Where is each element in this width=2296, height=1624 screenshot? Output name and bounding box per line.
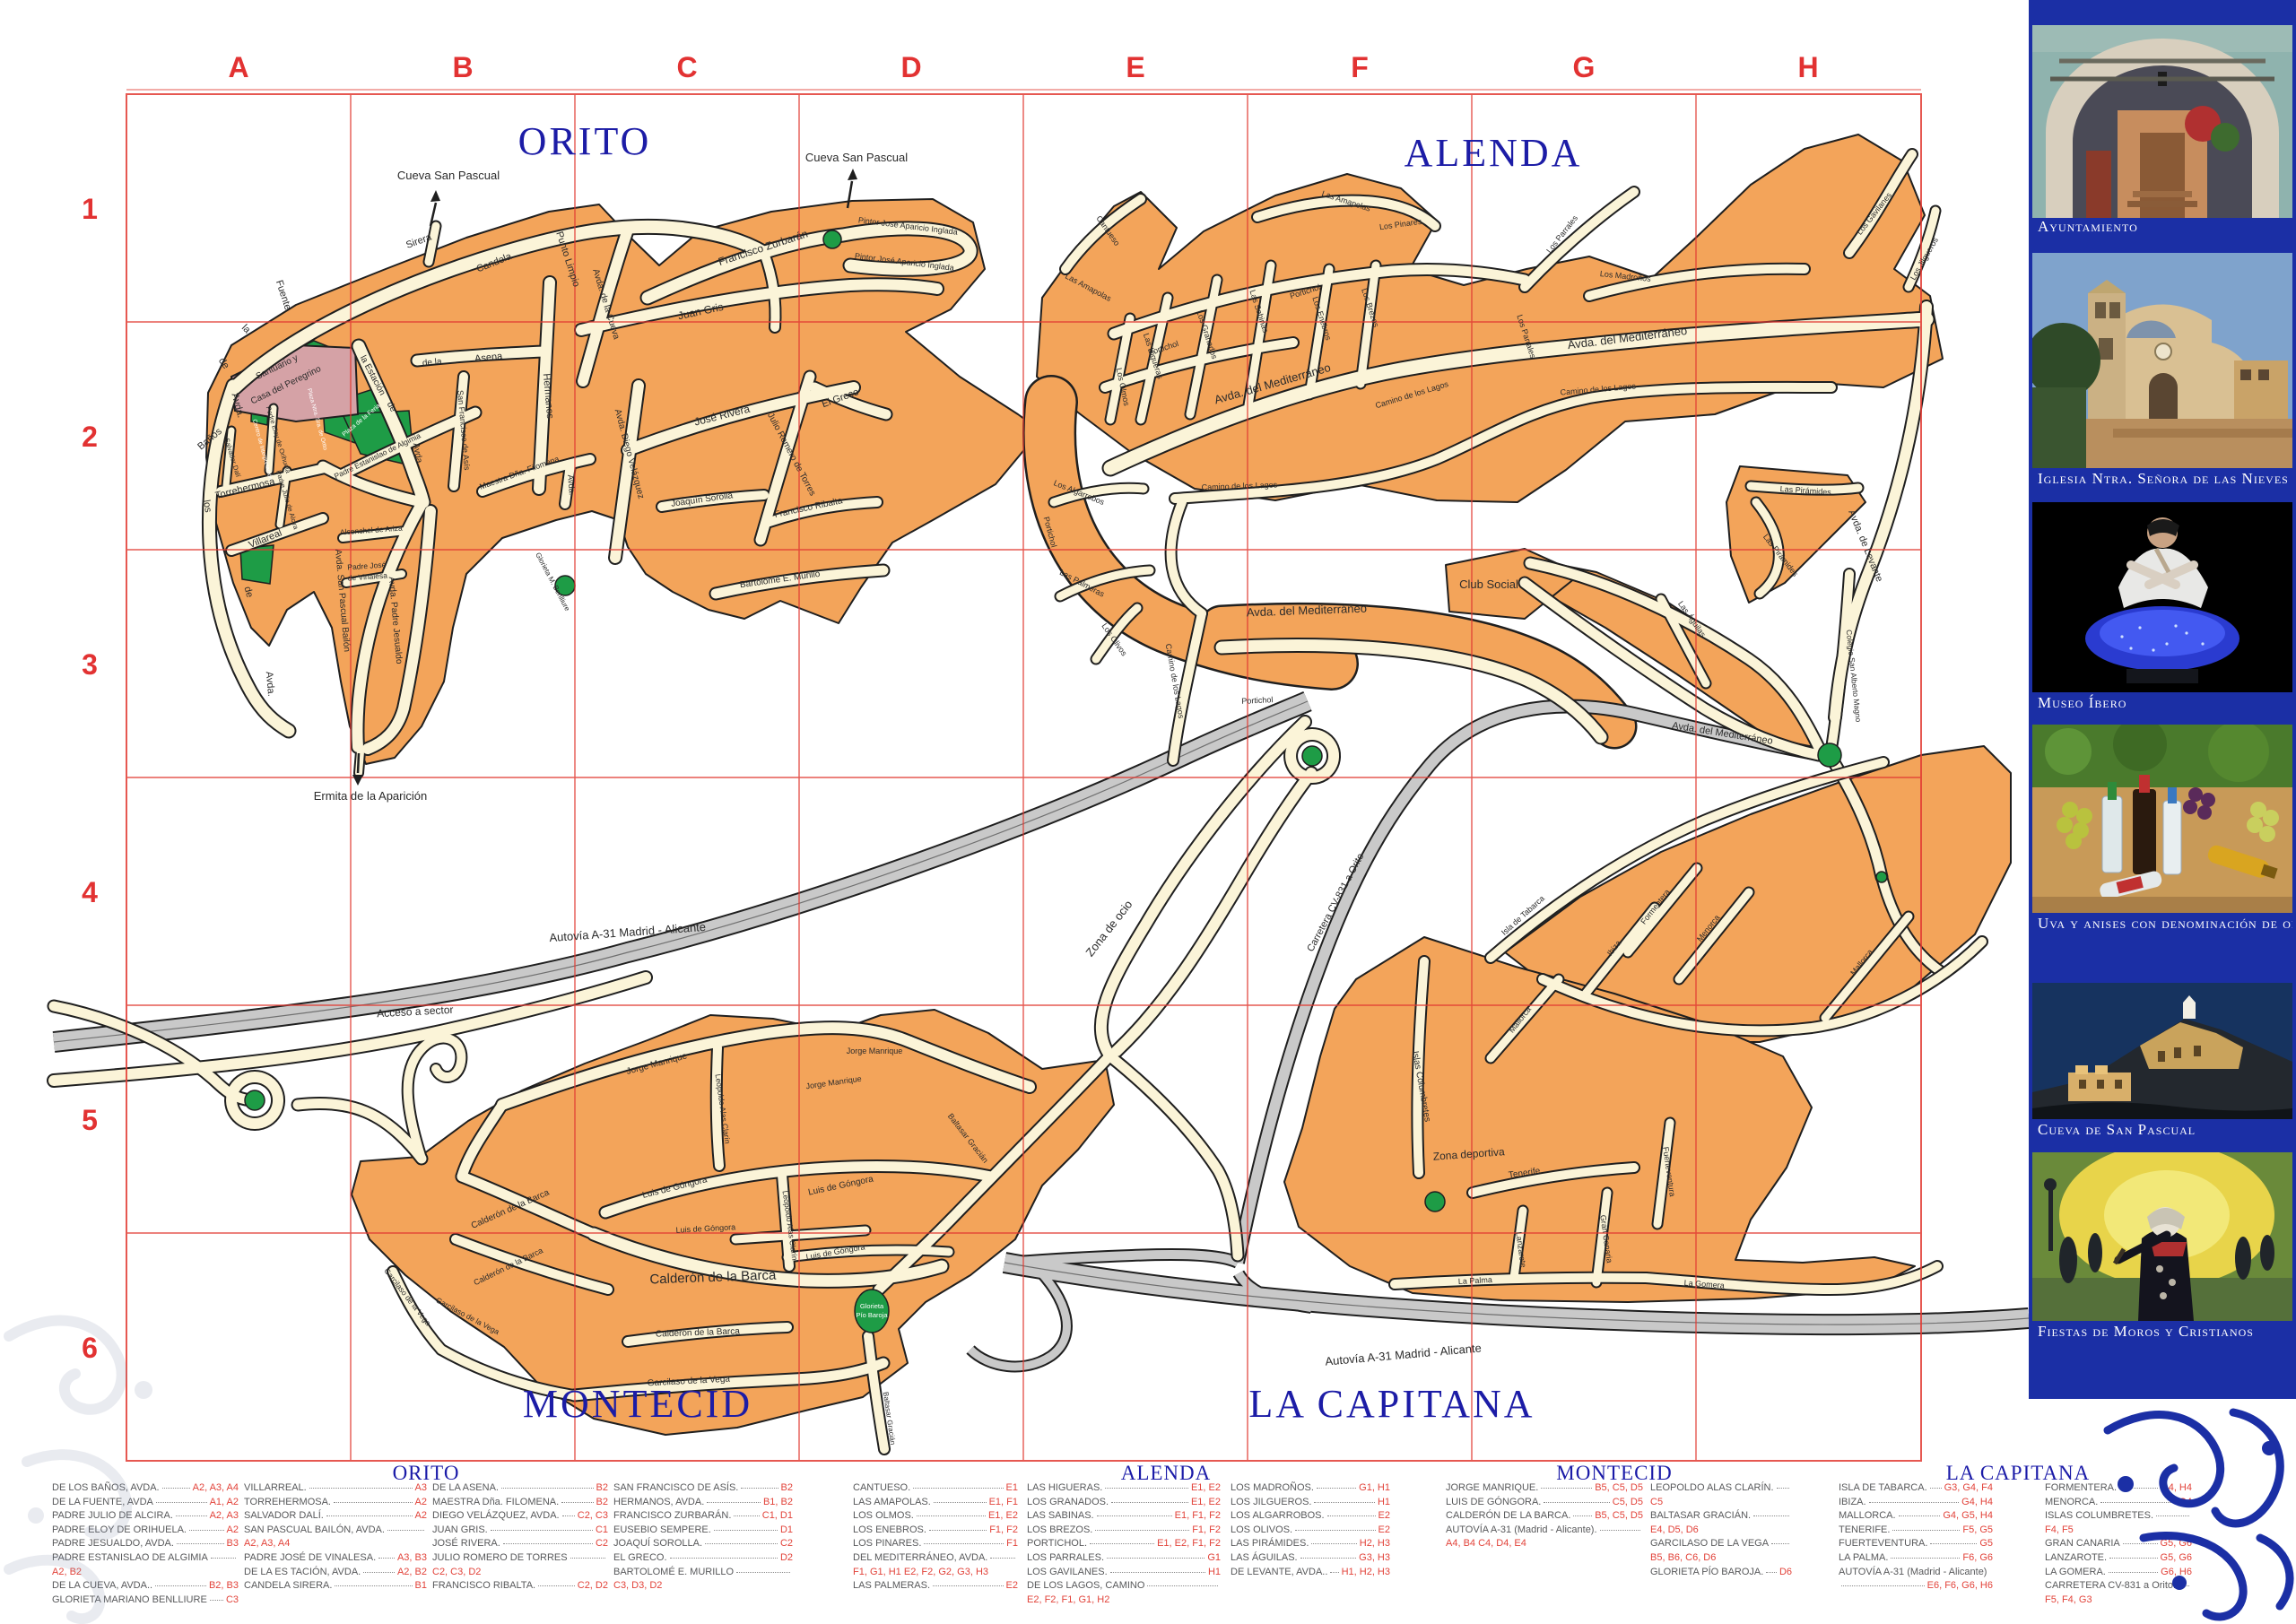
lbl-avda3: Avda.: [264, 671, 276, 697]
title-montecid: MONTECID: [523, 1382, 752, 1426]
lbl-colegio: Colegio San Alberto Magno: [1845, 630, 1864, 723]
lbl-cueva1: Cueva San Pascual: [397, 169, 500, 182]
index-col-orito-3: DE LA ASENA.B2MAESTRA Dña. FILOMENA.B2DI…: [432, 1481, 608, 1594]
caption-fiestas: Fiestas de Moros y Cristianos: [2038, 1323, 2292, 1341]
grid-col-e: E: [1126, 51, 1144, 83]
grid-col-d: D: [900, 51, 921, 83]
blue-ornament: [2090, 1394, 2296, 1624]
grid-row-1: 1: [82, 193, 98, 225]
glorieta-acceso: [245, 1090, 265, 1110]
photo-cueva: [2032, 983, 2292, 1119]
lbl-los2: los: [201, 499, 213, 514]
a31-upper-median: [54, 701, 1308, 1042]
grid-col-g: G: [1573, 51, 1596, 83]
grid-row-5: 5: [82, 1104, 98, 1136]
caption-ayuntamiento: Ayuntamiento: [2038, 218, 2292, 236]
lbl-gpb2: Pío Baroja: [856, 1311, 888, 1319]
grid-col-h: H: [1797, 51, 1818, 83]
index-col-alenda-3: LOS MADROÑOS.G1, H1LOS JILGUEROS.H1LOS A…: [1231, 1481, 1390, 1579]
caption-iglesia: Iglesia Ntra. Señora de las Nieves: [2038, 470, 2292, 488]
lbl-fuente: Fuente: [274, 279, 293, 311]
grid-row-3: 3: [82, 648, 98, 681]
town-map: A B C D E F G H 1 2 3 4 5 6 ORITO ALENDA…: [0, 0, 2029, 1462]
lbl-gpb1: Glorieta: [860, 1302, 884, 1310]
grid-col-f: F: [1351, 51, 1369, 83]
index-col-montecid-2: LEOPOLDO ALAS CLARÍN.C5BALTASAR GRACIÁN.…: [1650, 1481, 1792, 1579]
lbl-club: Club Social: [1459, 578, 1518, 591]
lbl-ermita: Ermita de la Aparición: [314, 789, 427, 803]
grid-col-b: B: [452, 51, 473, 83]
grid-col-c: C: [676, 51, 697, 83]
index-col-capitana-1: ISLA DE TABARCA.G3, G4, F4IBIZA.G4, H4MA…: [1839, 1481, 1993, 1594]
photo-iglesia: [2032, 253, 2292, 468]
lbl-jorge2: Jorge Manrique: [847, 1046, 903, 1055]
index-col-alenda-1: CANTUESO.E1LAS AMAPOLAS.E1, F1LOS OLMOS.…: [853, 1481, 1018, 1594]
caption-uva: Uva y anises con denominación de origen: [2038, 915, 2292, 933]
lbl-portichol3: Portichol: [1241, 695, 1273, 706]
glorieta-mediterraneo: [1818, 743, 1841, 767]
index-col-orito-2: VILLARREAL.A3TORREHERMOSA.A2SALVADOR DAL…: [244, 1481, 427, 1594]
grid-col-a: A: [228, 51, 248, 83]
caption-museo: Museo Íbero: [2038, 694, 2292, 712]
title-capitana: LA CAPITANA: [1248, 1382, 1535, 1426]
photo-sidebar: Ayuntamiento Iglesia Ntra. Señora de las…: [2029, 0, 2296, 1399]
lbl-avda-c2: Avda.: [566, 474, 577, 496]
lbl-lapalma: La Palma: [1458, 1275, 1493, 1286]
lbl-autovia2: Autovía A-31 Madrid - Alicante: [1325, 1341, 1483, 1368]
photo-fiestas: [2032, 1152, 2292, 1321]
title-alenda: ALENDA: [1405, 131, 1583, 175]
index-col-alenda-2: LAS HIGUERAS.E1, E2LOS GRANADOS.E1, E2LA…: [1027, 1481, 1221, 1607]
lbl-dela: de la: [422, 357, 442, 369]
gray-watermark: [0, 1282, 197, 1624]
photo-uva: [2032, 725, 2292, 913]
a31-upper: [54, 701, 1308, 1042]
caption-cueva: Cueva de San Pascual: [2038, 1121, 2292, 1139]
index-col-orito-4: SAN FRANCISCO DE ASÍS.B2HERMANOS, AVDA.B…: [613, 1481, 793, 1594]
lbl-cueva2: Cueva San Pascual: [805, 151, 908, 164]
photo-ayuntamiento: [2032, 25, 2292, 218]
grid-row-2: 2: [82, 421, 98, 453]
grid-row-4: 4: [82, 876, 98, 908]
photo-museo: [2032, 502, 2292, 692]
glorieta-zurbaran: [823, 230, 841, 248]
index-col-montecid-1: JORGE MANRIQUE.B5, C5, D5LUIS DE GÓNGORA…: [1446, 1481, 1643, 1551]
glorieta-small: [1876, 872, 1887, 882]
glorieta-deportiva: [1425, 1192, 1445, 1211]
a31-upper: [54, 701, 1308, 1042]
title-orito: ORITO: [518, 119, 652, 163]
glorieta-zona-ocio: [1302, 746, 1322, 766]
